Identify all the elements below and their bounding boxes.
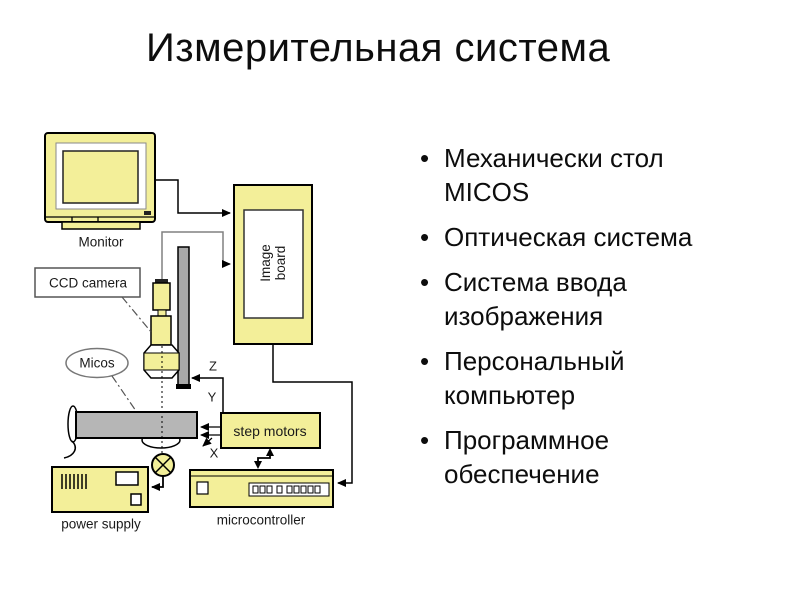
motors-microcontroller-arrow <box>254 448 274 469</box>
micos-stage <box>64 406 197 458</box>
system-diagram <box>0 0 800 600</box>
step-motors-label: step motors <box>233 423 306 439</box>
vent-slits <box>62 474 86 489</box>
dip-switches <box>253 486 320 493</box>
microcontroller-icon <box>190 470 333 507</box>
camera-to-board-cable <box>162 232 230 281</box>
power-supply-label: power supply <box>61 517 141 532</box>
power-supply-icon <box>52 467 148 512</box>
monitor-led <box>144 211 151 215</box>
stage-bar <box>76 412 197 438</box>
ccd-camera-icon <box>144 279 179 378</box>
lamp-icon <box>152 454 174 487</box>
x-axis-label: X <box>210 446 219 461</box>
monitor-to-board-line <box>155 180 230 213</box>
monitor-icon <box>45 133 155 229</box>
z-axis-label: Z <box>209 359 217 374</box>
microcontroller-label: microcontroller <box>217 513 306 528</box>
monitor-stand <box>62 222 140 229</box>
monitor-screen <box>63 151 138 203</box>
micos-label: Micos <box>79 356 114 371</box>
xy-shaft-arrows <box>201 427 221 446</box>
y-axis-label: Y <box>208 390 217 405</box>
slide: { "slide": { "title": "Измерительная сис… <box>0 0 800 600</box>
ccd-camera-label: CCD camera <box>49 276 127 291</box>
monitor-label: Monitor <box>78 235 123 250</box>
image-board-label: Image board <box>258 244 288 282</box>
